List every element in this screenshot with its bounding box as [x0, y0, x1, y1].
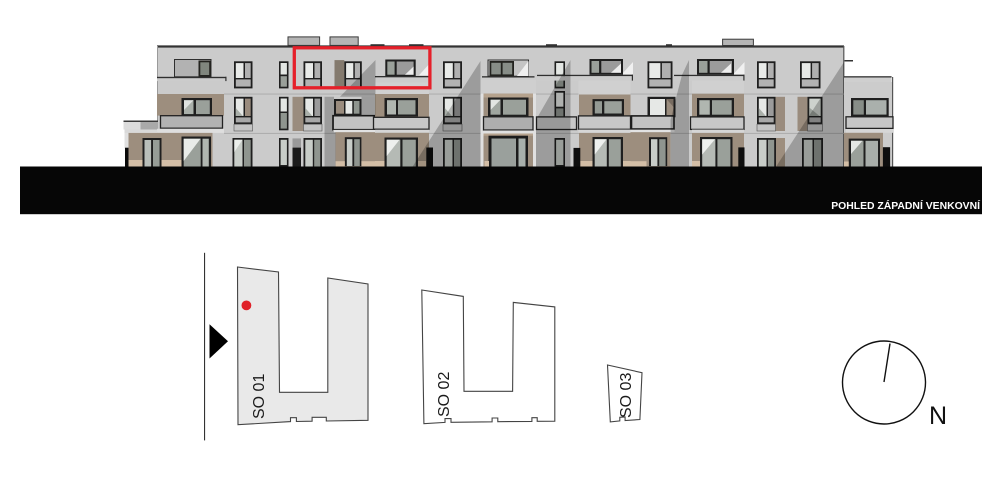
svg-text:POHLED ZÁPADNÍ VENKOVNÍ: POHLED ZÁPADNÍ VENKOVNÍ: [831, 199, 981, 212]
svg-text:N: N: [929, 402, 947, 430]
svg-text:SO 03: SO 03: [618, 373, 635, 418]
svg-text:SO 02: SO 02: [436, 372, 453, 417]
svg-text:SO 01: SO 01: [251, 374, 268, 419]
